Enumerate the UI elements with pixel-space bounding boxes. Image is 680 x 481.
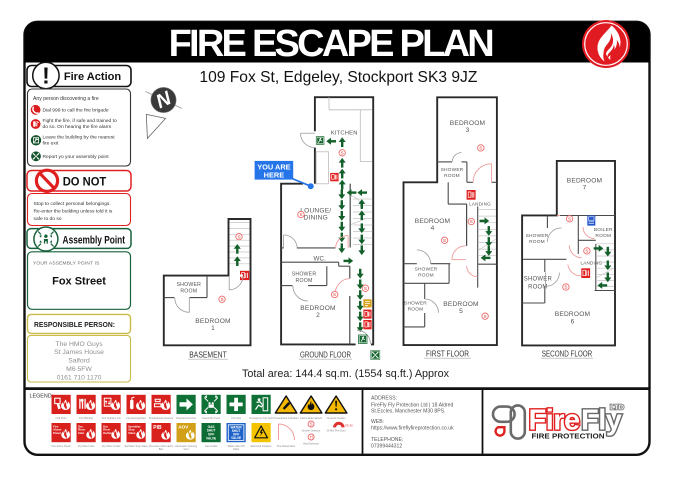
svg-text:ROOM: ROOM [180, 288, 197, 294]
svg-text:30 Min Fire Door: 30 Min Fire Door [326, 429, 345, 433]
svg-text:SHOWER: SHOWER [441, 167, 464, 173]
svg-text:SHOWER: SHOWER [526, 233, 549, 239]
svg-text:ROOM: ROOM [528, 284, 547, 290]
svg-text:BEDROOM: BEDROOM [415, 218, 450, 225]
svg-text:RESPONSIBLE PERSON:: RESPONSIBLE PERSON: [34, 320, 115, 329]
svg-text:Fire Alarm Panel: Fire Alarm Panel [52, 444, 72, 448]
svg-text:5: 5 [459, 308, 463, 315]
svg-text:Emergency Fire Exit: Emergency Fire Exit [249, 416, 273, 420]
svg-text:2: 2 [316, 312, 320, 319]
svg-text:Stop to collect personal belon: Stop to collect personal belongings. [34, 201, 111, 207]
svg-text:BASEMENT: BASEMENT [189, 350, 227, 359]
svg-text:BEDROOM: BEDROOM [195, 318, 230, 325]
svg-text:The HMO Guys: The HMO Guys [55, 341, 103, 348]
svg-text:do so. On hearing the fire ala: do so. On hearing the fire alarm [43, 124, 112, 130]
svg-text:LTD: LTD [610, 403, 625, 412]
svg-text:Box: Box [159, 447, 164, 451]
svg-text:VALVE: VALVE [206, 437, 216, 441]
svg-text:M6 5FW: M6 5FW [66, 366, 92, 373]
svg-text:S: S [479, 146, 482, 151]
svg-text:YOUR ASSEMBLY POINT IS: YOUR ASSEMBLY POINT IS [33, 261, 100, 267]
svg-text:LANDING: LANDING [580, 260, 602, 265]
svg-text:Fire Blanket: Fire Blanket [79, 416, 93, 420]
svg-text:WEB:: WEB: [371, 419, 384, 425]
svg-text:safe to do so: safe to do so [34, 216, 62, 222]
svg-text:LANDING: LANDING [469, 201, 491, 206]
svg-text:VALVE: VALVE [231, 436, 241, 440]
svg-text:Fire Action: Fire Action [64, 71, 121, 83]
svg-text:S: S [470, 219, 473, 224]
svg-text:KITCHEN: KITCHEN [331, 131, 358, 137]
svg-text:1: 1 [211, 325, 215, 332]
svg-text:SHOWER: SHOWER [524, 276, 553, 282]
svg-text:First Aid: First Aid [231, 416, 241, 420]
svg-text:DO NOT: DO NOT [63, 175, 107, 189]
svg-text:Smoke/Heat Detector: Smoke/Heat Detector [149, 416, 174, 420]
svg-text:0161 710 1170: 0161 710 1170 [57, 374, 102, 381]
svg-text:Pressurised Cylinders: Pressurised Cylinders [273, 416, 299, 420]
svg-text:Fire Extinguisher: Fire Extinguisher [126, 416, 146, 420]
svg-text:FIRST FLOOR: FIRST FLOOR [426, 349, 469, 358]
svg-text:S: S [310, 422, 313, 427]
svg-text:109 Fox St, Edgeley, Stockport: 109 Fox St, Edgeley, Stockport SK3 9JZ [199, 69, 477, 86]
svg-text:Heat Detector: Heat Detector [303, 442, 319, 446]
svg-text:FIRE ESCAPE PLAN: FIRE ESCAPE PLAN [169, 23, 493, 65]
svg-text:Fox Street: Fox Street [52, 276, 106, 288]
svg-text:St James House: St James House [54, 349, 104, 356]
svg-text:FIRE PROTECTION: FIRE PROTECTION [532, 432, 605, 441]
svg-text:SHOWER: SHOWER [177, 282, 202, 288]
svg-text:4: 4 [431, 225, 435, 232]
svg-text:AOV: AOV [178, 425, 189, 430]
svg-text:Call Point: Call Point [56, 416, 67, 420]
svg-text:SECOND FLOOR: SECOND FLOOR [542, 349, 593, 358]
svg-text:Vent: Vent [183, 447, 188, 451]
svg-text:Total area: 144.4 sq.m. (1554: Total area: 144.4 sq.m. (1554 sq.ft.) Ap… [242, 368, 450, 380]
svg-text:fire exit: fire exit [43, 140, 59, 146]
svg-text:ROOM: ROOM [418, 273, 434, 279]
svg-text:S: S [341, 151, 344, 156]
svg-text:FD 30: FD 30 [345, 423, 353, 427]
svg-text:Inlet: Inlet [78, 431, 84, 435]
svg-text:S: S [585, 249, 588, 254]
svg-text:3: 3 [466, 127, 470, 134]
svg-text:TELEPHONE:: TELEPHONE: [371, 437, 403, 443]
svg-text:ROOM: ROOM [444, 173, 460, 179]
svg-text:BEDROOM: BEDROOM [450, 120, 485, 127]
svg-text:Fire Fighters Lift: Fire Fighters Lift [102, 416, 121, 420]
svg-text:S: S [220, 297, 223, 302]
svg-text:ROOM: ROOM [595, 233, 611, 239]
svg-text:Fight the fire, if safe and tr: Fight the fire, if safe and trained to [43, 118, 117, 124]
svg-text:Gas Outlet: Gas Outlet [205, 444, 218, 448]
svg-text:Flammable Hazard: Flammable Hazard [300, 416, 322, 420]
svg-text:Assembly Point: Assembly Point [63, 234, 126, 246]
svg-text:HERE: HERE [264, 171, 285, 180]
svg-text:SHOWER: SHOWER [404, 301, 427, 307]
svg-text:Report yo your assembly point: Report yo your assembly point [43, 154, 110, 160]
svg-text:Sprinkler Stop Valve: Sprinkler Stop Valve [124, 444, 148, 448]
svg-text:St.Eccles, Manchester M30 8PS.: St.Eccles, Manchester M30 8PS. [371, 408, 445, 414]
svg-text:!: ! [42, 63, 50, 89]
svg-text:Panel: Panel [53, 431, 61, 435]
svg-text:BOILER: BOILER [594, 227, 613, 233]
svg-text:Any person discovering a fire: Any person discovering a fire [33, 96, 99, 102]
svg-text:Valve: Valve [128, 431, 136, 435]
svg-text:Dry Riser Inlet: Dry Riser Inlet [78, 444, 95, 448]
svg-text:ROOM: ROOM [529, 239, 545, 245]
svg-text:BEDROOM: BEDROOM [555, 311, 590, 318]
svg-text:BEDROOM: BEDROOM [443, 301, 478, 308]
svg-text:Salford: Salford [68, 358, 90, 365]
svg-text:BEDROOM: BEDROOM [300, 305, 335, 312]
svg-text:LEGEND:: LEGEND: [30, 394, 54, 400]
svg-text:S: S [333, 292, 336, 297]
svg-text:Dry Riser Outlet: Dry Riser Outlet [102, 444, 121, 448]
svg-text:ROOM: ROOM [296, 278, 313, 284]
svg-text:WC.: WC. [313, 255, 326, 262]
svg-text:S: S [237, 234, 240, 239]
svg-text:Leave the building by the near: Leave the building by the nearest [43, 134, 116, 140]
svg-text:Assembly Point: Assembly Point [202, 416, 220, 420]
svg-text:07399444312: 07399444312 [371, 443, 402, 449]
svg-text:SHOWER: SHOWER [415, 267, 438, 273]
svg-text:Smoke Detector: Smoke Detector [302, 429, 321, 433]
svg-text:LOUNGE/: LOUNGE/ [300, 207, 331, 214]
svg-text:S: S [443, 238, 446, 243]
svg-text:DINING: DINING [304, 215, 328, 222]
svg-text:S: S [484, 314, 487, 319]
svg-text:S: S [364, 286, 367, 291]
svg-text:PIB: PIB [153, 425, 162, 431]
svg-text:H: H [310, 435, 313, 440]
svg-text:ADDRESS:: ADDRESS: [371, 396, 397, 402]
svg-text:Re-enter the building unless t: Re-enter the building unless told it is [34, 208, 113, 214]
svg-text:6: 6 [571, 318, 575, 325]
svg-text:GROUND FLOOR: GROUND FLOOR [300, 350, 351, 359]
svg-text:7: 7 [583, 185, 587, 192]
svg-text:General Caution: General Caution [327, 416, 346, 420]
svg-text:ROOM: ROOM [408, 307, 424, 313]
svg-text:S: S [299, 212, 302, 217]
svg-text:Valve: Valve [233, 447, 240, 451]
svg-text:BEDROOM: BEDROOM [567, 177, 602, 184]
svg-text:Fire Rated Door: Fire Rated Door [277, 444, 296, 448]
svg-text:S: S [564, 285, 567, 290]
svg-text:Directional Arrow: Directional Arrow [176, 416, 196, 420]
svg-text:S: S [568, 217, 571, 222]
svg-text:Electrical Isolators: Electrical Isolators [251, 444, 273, 448]
svg-text:Outlet: Outlet [103, 431, 111, 435]
svg-text:Dial 999 to call the fire brig: Dial 999 to call the fire brigade [43, 108, 109, 114]
svg-text:https://www.fireflyfireprotect: https://www.fireflyfireprotection.co.uk [371, 425, 454, 431]
svg-text:SHOWER: SHOWER [292, 272, 317, 278]
